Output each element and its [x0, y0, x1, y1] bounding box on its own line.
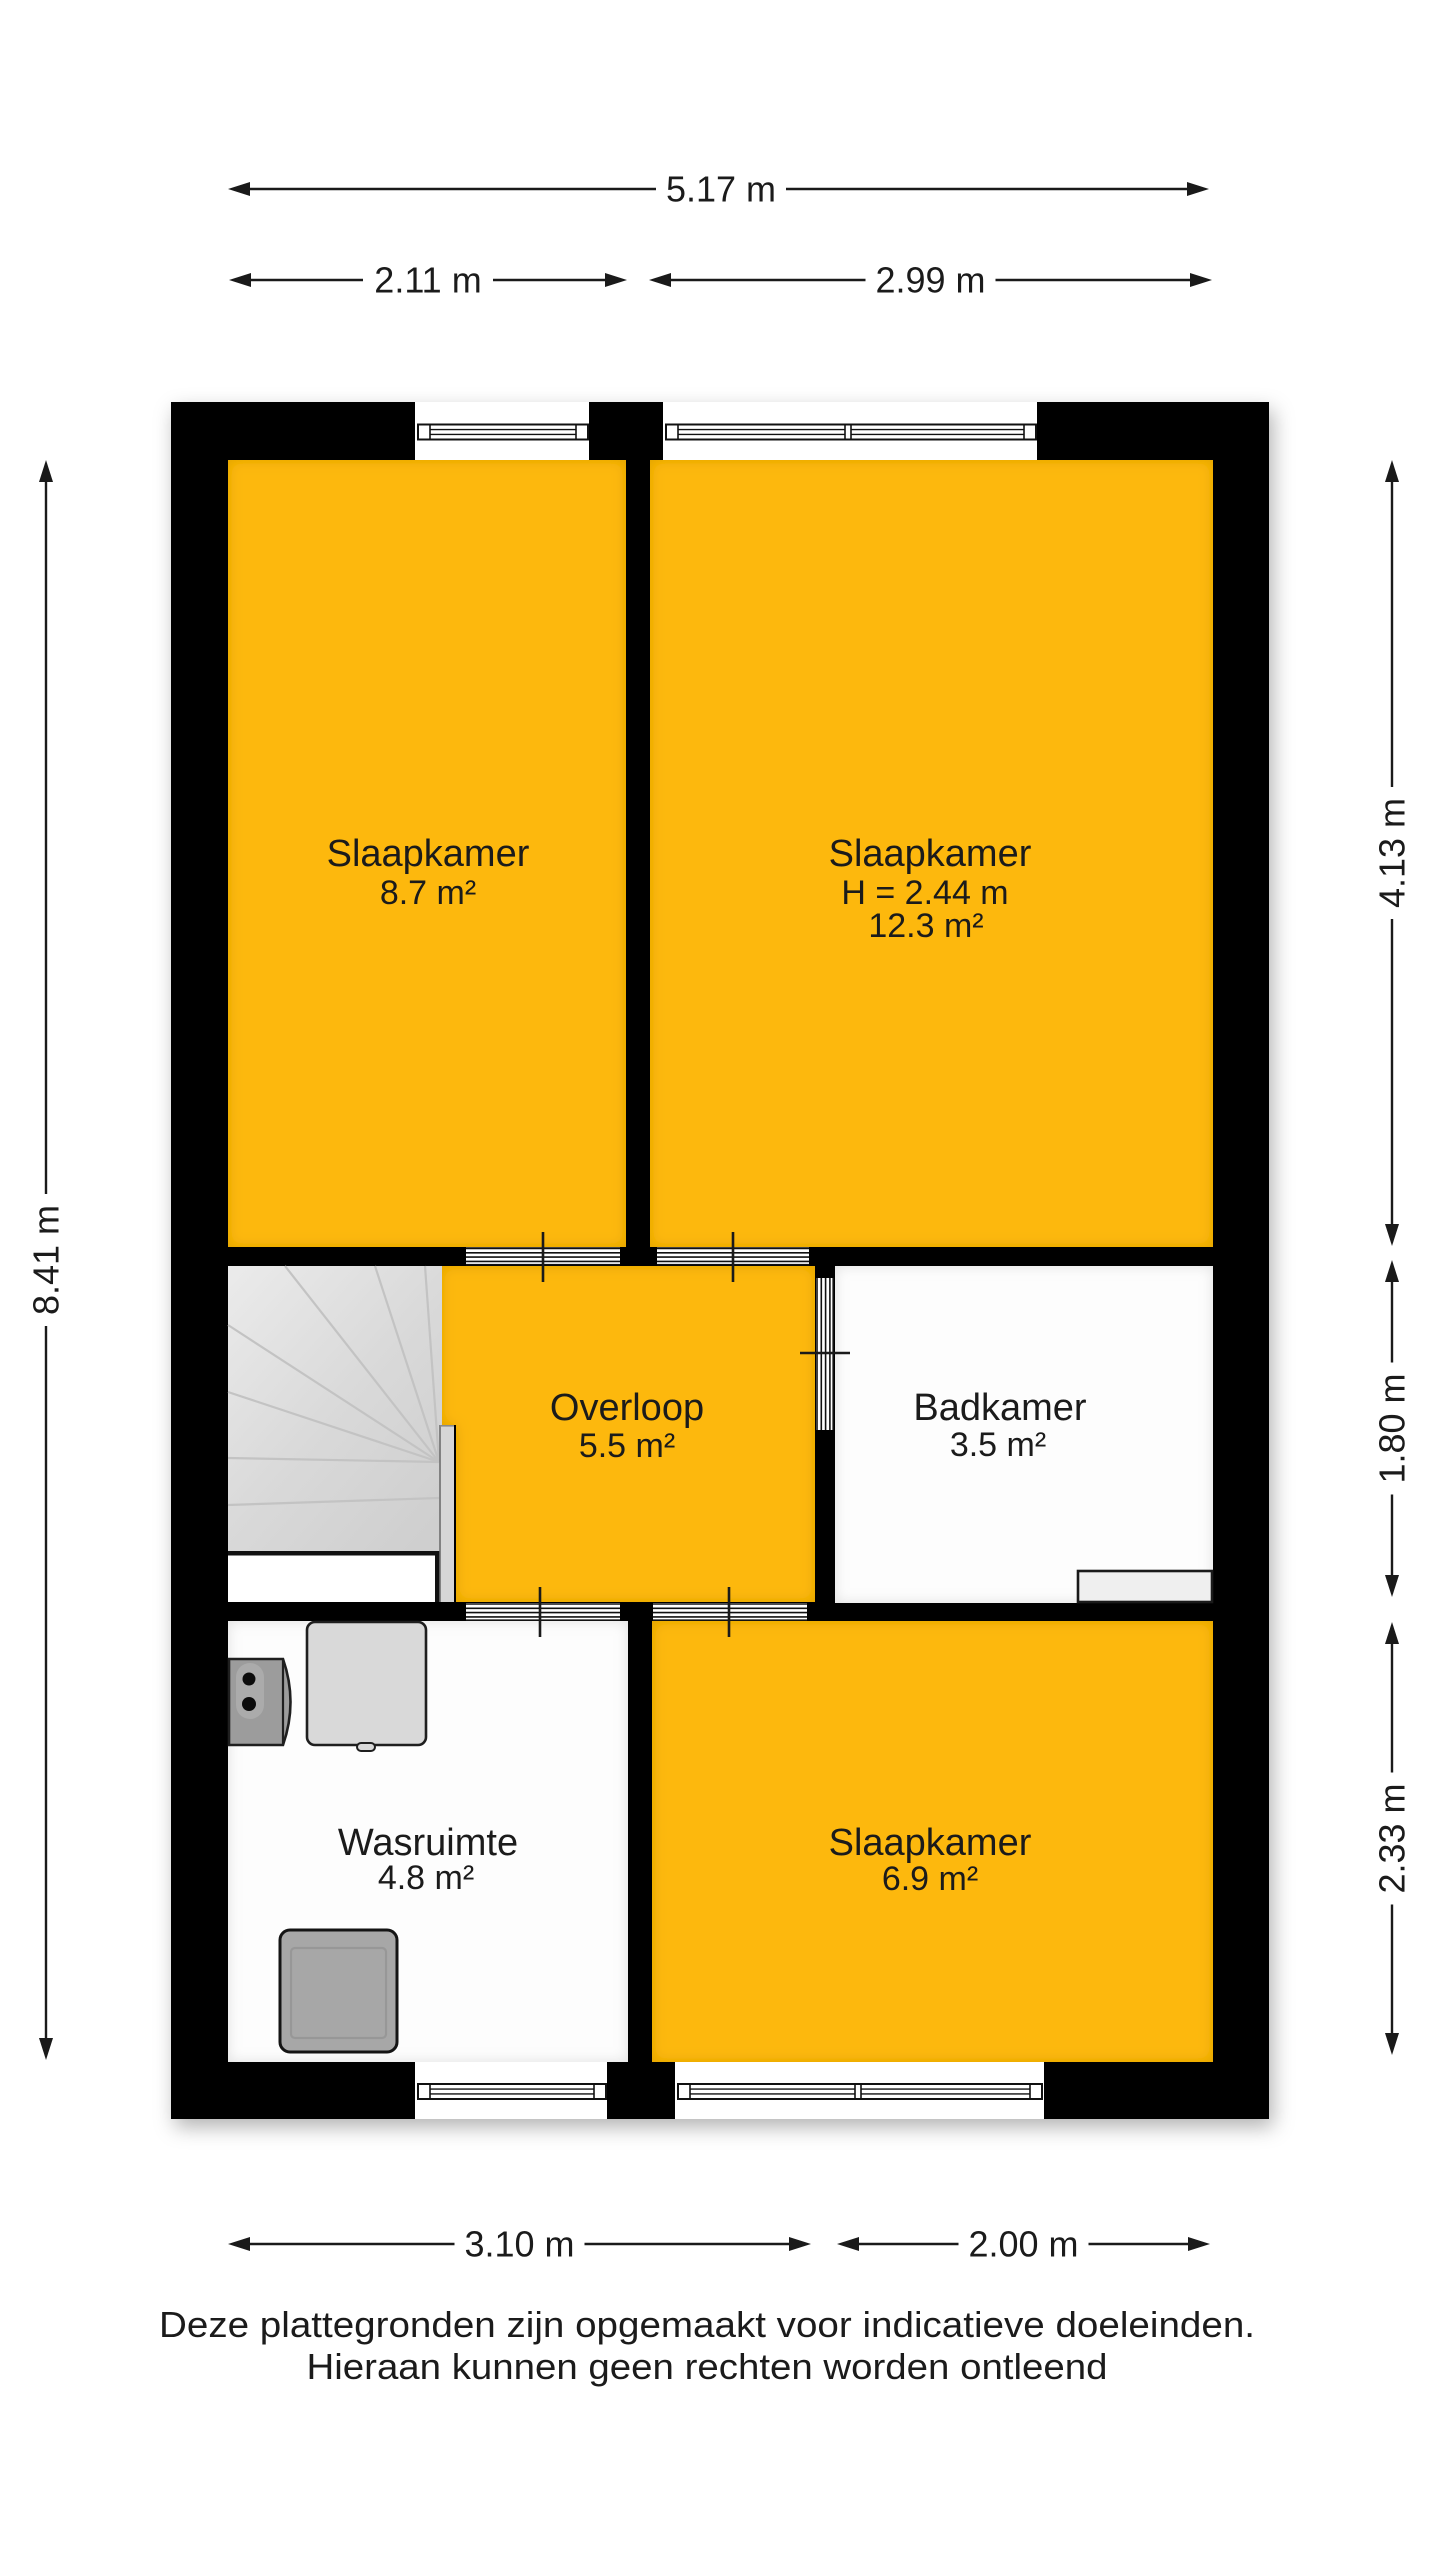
svg-text:Slaapkamer: Slaapkamer	[829, 833, 1032, 875]
svg-text:4.8 m²: 4.8 m²	[378, 1859, 474, 1897]
svg-text:Hieraan kunnen geen rechten wo: Hieraan kunnen geen rechten worden ontle…	[307, 2346, 1108, 2387]
svg-text:2.99 m: 2.99 m	[875, 260, 985, 301]
svg-text:12.3 m²: 12.3 m²	[868, 907, 983, 945]
svg-text:Deze plattegronden zijn opgema: Deze plattegronden zijn opgemaakt voor i…	[159, 2304, 1255, 2345]
svg-text:Badkamer: Badkamer	[913, 1387, 1087, 1429]
svg-text:2.11 m: 2.11 m	[374, 260, 481, 301]
svg-text:6.9 m²: 6.9 m²	[882, 1860, 978, 1898]
svg-text:5.5 m²: 5.5 m²	[579, 1427, 675, 1465]
svg-text:2.33 m: 2.33 m	[1372, 1783, 1413, 1893]
svg-text:Slaapkamer: Slaapkamer	[327, 833, 530, 875]
svg-text:Overloop: Overloop	[550, 1387, 704, 1429]
svg-text:3.5 m²: 3.5 m²	[950, 1426, 1046, 1464]
svg-text:4.13 m: 4.13 m	[1372, 798, 1413, 908]
svg-text:8.41 m: 8.41 m	[26, 1205, 67, 1315]
svg-text:1.80 m: 1.80 m	[1372, 1373, 1413, 1483]
svg-text:8.7 m²: 8.7 m²	[380, 874, 476, 912]
svg-text:2.00 m: 2.00 m	[968, 2224, 1078, 2265]
svg-text:3.10 m: 3.10 m	[464, 2224, 574, 2265]
svg-text:Slaapkamer: Slaapkamer	[829, 1822, 1032, 1864]
svg-text:Wasruimte: Wasruimte	[338, 1822, 518, 1864]
svg-text:5.17 m: 5.17 m	[666, 169, 776, 210]
